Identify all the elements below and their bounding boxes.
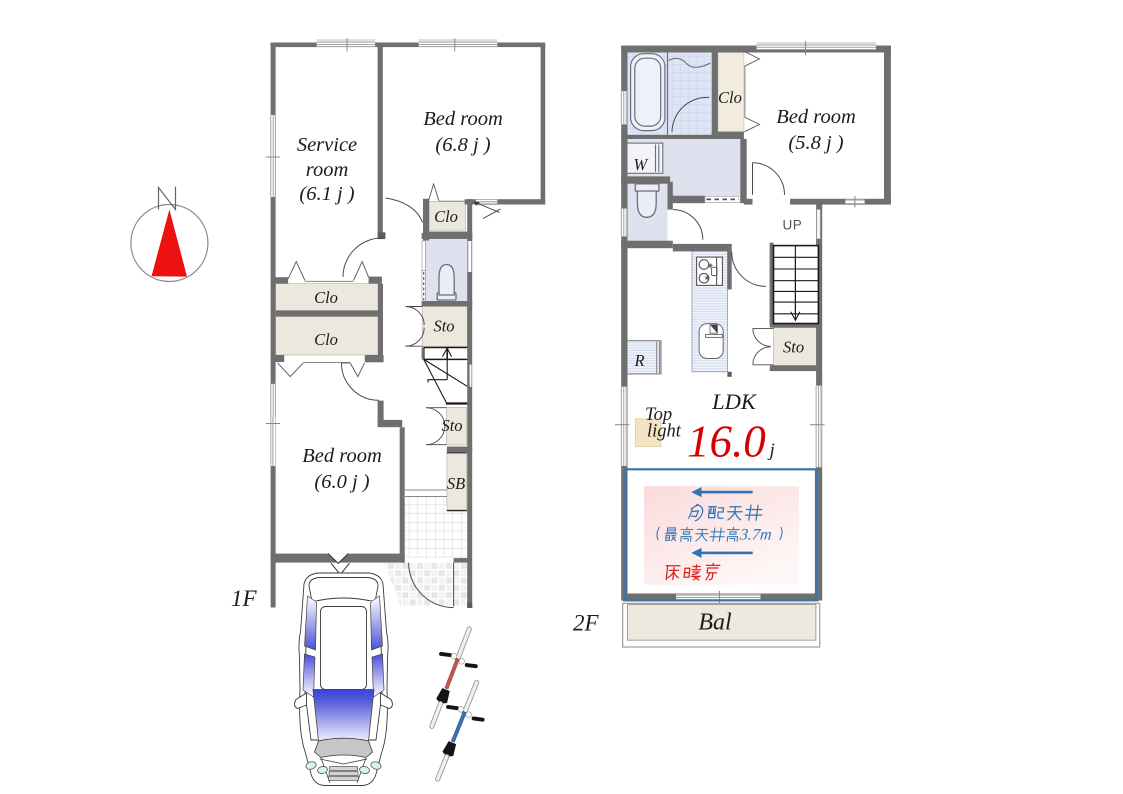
svg-text:(6.0 j ): (6.0 j ) [314,471,369,493]
svg-text:Bal: Bal [698,610,732,636]
svg-text:Bed room: Bed room [423,108,503,130]
svg-text:SB: SB [447,474,465,493]
svg-text:Bed room: Bed room [302,445,382,467]
svg-text:Sto: Sto [441,416,462,435]
svg-text:Clo: Clo [718,88,742,107]
svg-text:(6.1 j ): (6.1 j ) [299,183,354,205]
svg-text:Sto: Sto [433,317,454,336]
svg-text:3.7m: 3.7m [738,527,772,544]
svg-text:2F: 2F [573,611,600,636]
svg-text:R: R [634,351,645,370]
svg-text:1F: 1F [231,586,258,611]
svg-text:Clo: Clo [314,330,338,349]
svg-text:W: W [634,155,649,174]
svg-text:LDK: LDK [711,389,757,414]
svg-text:Service: Service [297,134,357,156]
svg-text:Clo: Clo [314,288,338,307]
svg-text:Bed room: Bed room [776,106,856,128]
svg-text:(6.8 j ): (6.8 j ) [435,134,490,156]
svg-text:UP: UP [783,218,803,233]
svg-text:16.0: 16.0 [687,417,766,467]
svg-text:Clo: Clo [434,207,458,226]
svg-text:light: light [647,422,682,442]
svg-text:room: room [306,159,349,181]
svg-text:Sto: Sto [783,338,804,357]
svg-text:(5.8 j ): (5.8 j ) [788,132,843,154]
